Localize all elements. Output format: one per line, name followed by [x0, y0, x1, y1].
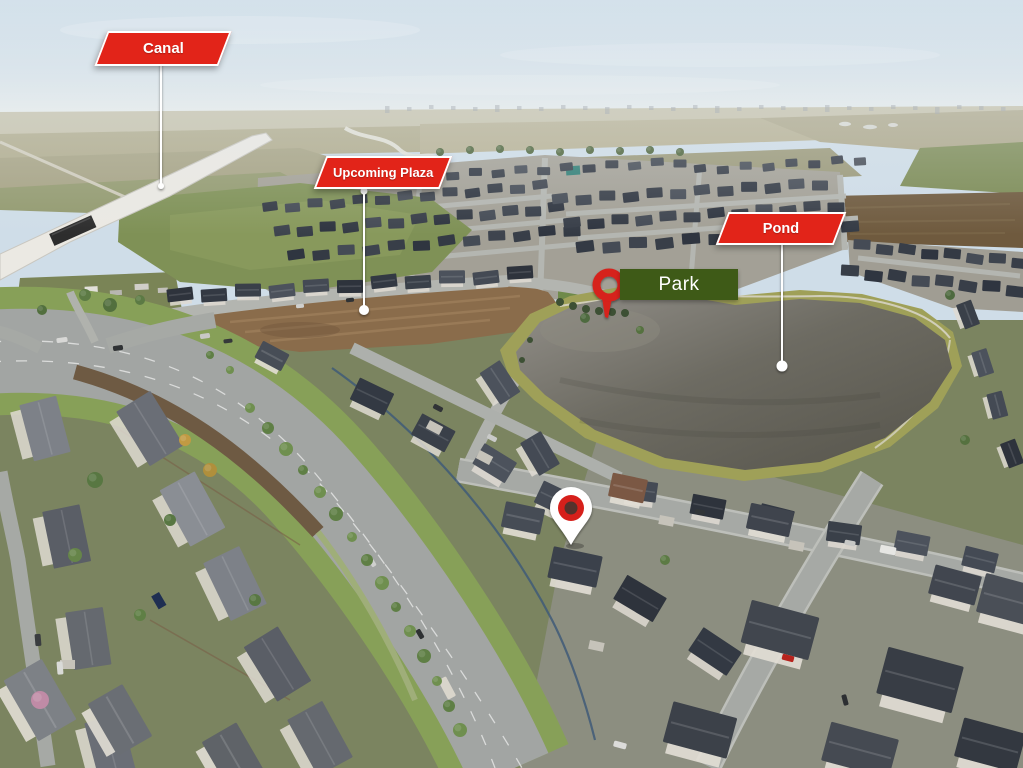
pond-leader-dot	[777, 361, 788, 372]
canal-leader-dot	[158, 183, 164, 189]
upcoming-plaza-callout: Upcoming Plaza	[314, 156, 453, 189]
canal-callout: Canal	[94, 31, 231, 66]
aerial-scene	[0, 0, 1023, 768]
upcoming-plaza-callout-label: Upcoming Plaza	[333, 165, 433, 180]
plaza-leader-dot	[359, 305, 369, 315]
park-callout-label: Park	[658, 274, 699, 296]
park-callout: Park	[620, 269, 738, 300]
canal-callout-label: Canal	[143, 40, 184, 57]
aerial-photo: Canal Upcoming Plaza Pond Park	[0, 0, 1023, 768]
pond-callout: Pond	[716, 212, 847, 245]
pond-callout-label: Pond	[763, 221, 799, 237]
